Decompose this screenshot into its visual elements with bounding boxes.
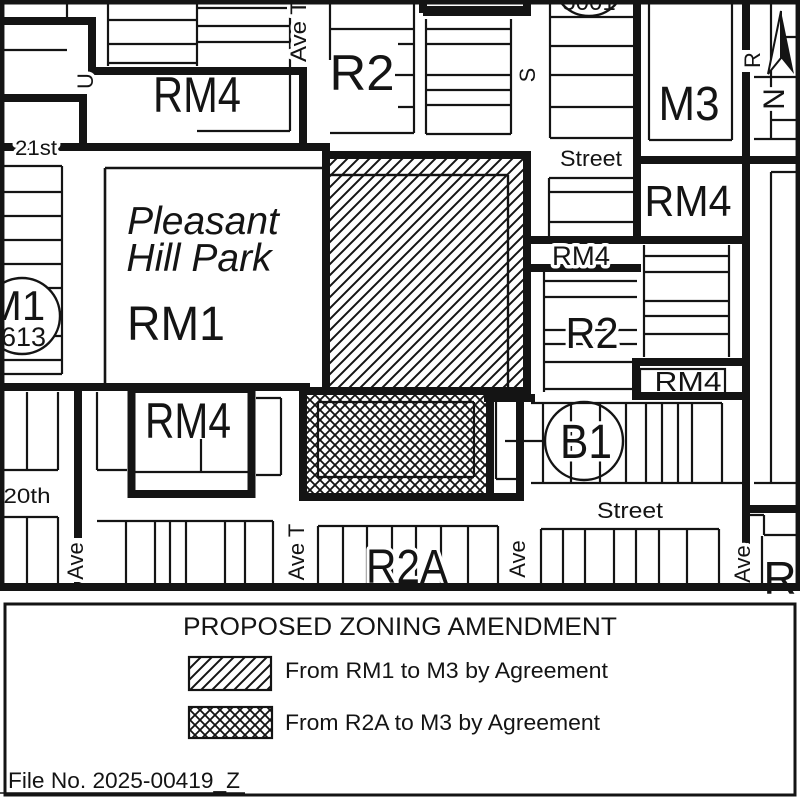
svg-text:N: N — [758, 88, 791, 110]
svg-text:RM4: RM4 — [645, 177, 732, 226]
svg-text:From RM1 to M3 by Agreement: From RM1 to M3 by Agreement — [285, 658, 608, 683]
svg-text:20th: 20th — [4, 485, 51, 508]
svg-text:R: R — [763, 552, 796, 604]
svg-text:RM1: RM1 — [127, 298, 225, 351]
svg-text:RM4: RM4 — [655, 366, 722, 397]
svg-text:From R2A to M3 by Agreement: From R2A to M3 by Agreement — [285, 710, 600, 735]
svg-text:B1: B1 — [560, 416, 612, 469]
svg-text:Ave: Ave — [63, 542, 88, 580]
svg-text:PROPOSED ZONING AMENDMENT: PROPOSED ZONING AMENDMENT — [183, 613, 617, 641]
svg-text:U: U — [73, 73, 98, 89]
svg-text:21st: 21st — [15, 137, 57, 160]
svg-text:RM4: RM4 — [552, 241, 610, 271]
svg-text:Ave: Ave — [505, 540, 530, 578]
svg-text:R2: R2 — [566, 309, 619, 358]
svg-text:3613: 3613 — [0, 322, 46, 352]
svg-text:File No. 2025-00419_Z: File No. 2025-00419_Z — [8, 768, 240, 793]
svg-text:M3: M3 — [659, 78, 720, 131]
svg-text:R: R — [740, 52, 765, 68]
svg-text:Ave T: Ave T — [286, 0, 311, 62]
svg-text:RM4: RM4 — [145, 393, 231, 449]
svg-text:Ave T: Ave T — [284, 524, 309, 581]
svg-text:S: S — [515, 68, 540, 83]
svg-text:Hill Park: Hill Park — [126, 237, 274, 280]
svg-text:Street: Street — [597, 498, 663, 523]
svg-text:R2: R2 — [330, 45, 395, 101]
svg-text:Street: Street — [560, 146, 622, 171]
svg-text:RM4: RM4 — [153, 67, 241, 123]
svg-text:Ave: Ave — [730, 545, 755, 583]
